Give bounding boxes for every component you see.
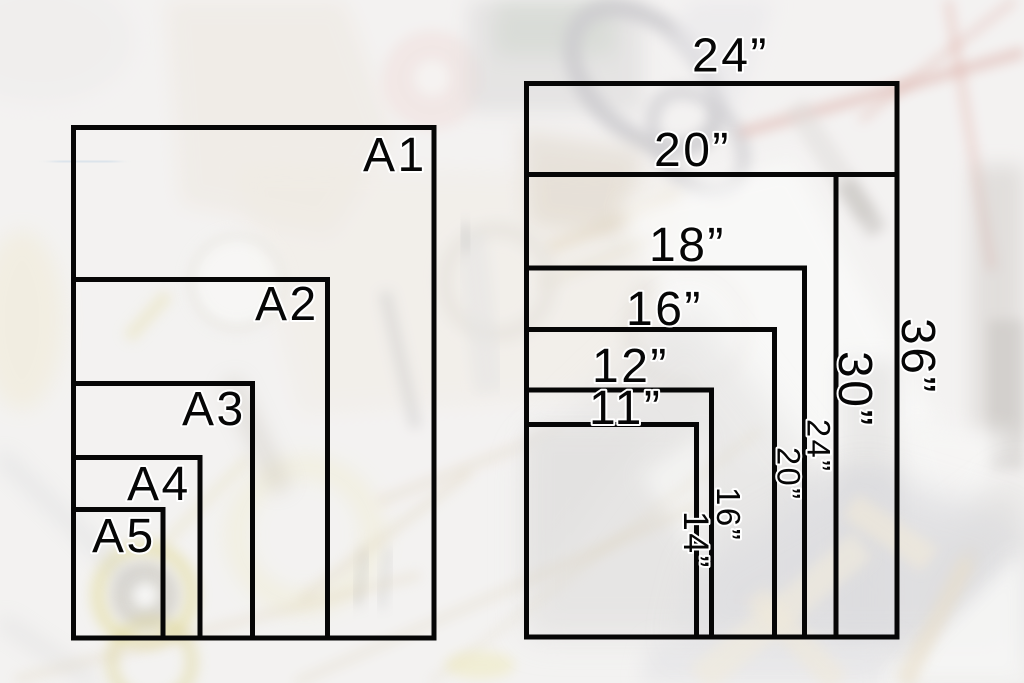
svg-text:20”: 20”	[771, 447, 807, 501]
svg-text:A1: A1	[363, 129, 427, 182]
svg-text:A2: A2	[255, 278, 319, 331]
svg-text:30”: 30”	[828, 351, 881, 428]
svg-text:36”: 36”	[891, 318, 944, 395]
svg-text:16”: 16”	[626, 283, 703, 336]
svg-text:A4: A4	[127, 458, 191, 511]
svg-text:A5: A5	[92, 510, 156, 563]
svg-text:11”: 11”	[589, 382, 662, 435]
svg-text:A3: A3	[182, 383, 246, 436]
svg-text:20”: 20”	[654, 124, 731, 177]
svg-text:24”: 24”	[692, 30, 769, 83]
svg-text:14”: 14”	[676, 511, 716, 570]
svg-text:18”: 18”	[649, 219, 726, 272]
